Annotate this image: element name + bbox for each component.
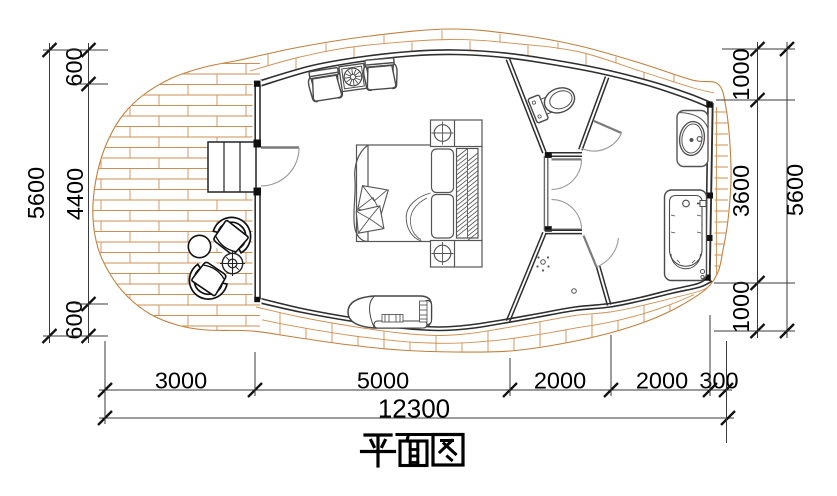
svg-text:300: 300 (699, 368, 738, 394)
svg-text:4400: 4400 (62, 168, 88, 220)
svg-text:2000: 2000 (636, 368, 688, 394)
svg-text:1000: 1000 (728, 48, 754, 100)
svg-text:3600: 3600 (728, 165, 754, 217)
svg-text:600: 600 (61, 300, 87, 339)
svg-text:2000: 2000 (534, 368, 586, 394)
svg-text:600: 600 (61, 47, 87, 86)
svg-text:12300: 12300 (378, 394, 450, 424)
svg-text:3000: 3000 (155, 368, 207, 394)
svg-text:5600: 5600 (23, 167, 49, 219)
svg-text:1000: 1000 (728, 281, 754, 333)
svg-text:5000: 5000 (357, 368, 409, 394)
svg-text:5600: 5600 (782, 164, 808, 216)
